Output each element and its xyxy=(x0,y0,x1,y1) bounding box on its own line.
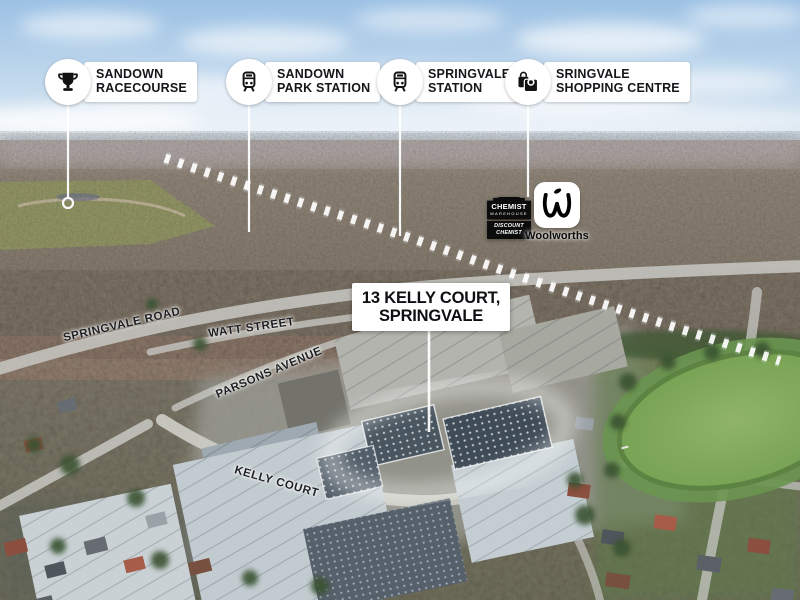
shopping-bag-icon xyxy=(505,59,551,105)
property-address-line: SPRINGVALE xyxy=(379,307,483,325)
property-address-line: 13 KELLY COURT, xyxy=(362,289,500,307)
landmark-label-line: SRINGVALE xyxy=(556,68,680,82)
landmark-label-line: PARK STATION xyxy=(277,82,370,96)
landmark-sandown-racecourse: SANDOWN RACECOURSE xyxy=(45,59,197,105)
woolworths-logo: Woolworths xyxy=(521,182,593,242)
woolworths-wordmark: Woolworths xyxy=(521,230,593,242)
landmark-springvale-station: SPRINGVALE STATION xyxy=(377,59,520,105)
landmark-label-line: SHOPPING CENTRE xyxy=(556,82,680,96)
property-address-label: 13 KELLY COURT, SPRINGVALE xyxy=(352,283,510,331)
train-icon xyxy=(226,59,272,105)
trophy-icon xyxy=(45,59,91,105)
landmark-sringvale-shopping-centre: SRINGVALE SHOPPING CENTRE xyxy=(505,59,690,105)
landmark-label-line: SPRINGVALE xyxy=(428,68,510,82)
landmark-label-line: RACECOURSE xyxy=(96,82,187,96)
train-icon xyxy=(377,59,423,105)
aerial-marketing-image: SANDOWN RACECOURSE SANDOWN PARK STATION xyxy=(0,0,800,600)
woolworths-w-icon xyxy=(534,182,580,228)
landmark-label-line: STATION xyxy=(428,82,510,96)
landmark-label-line: SANDOWN xyxy=(277,68,370,82)
landmark-sandown-park-station: SANDOWN PARK STATION xyxy=(226,59,380,105)
landmark-label-line: SANDOWN xyxy=(96,68,187,82)
